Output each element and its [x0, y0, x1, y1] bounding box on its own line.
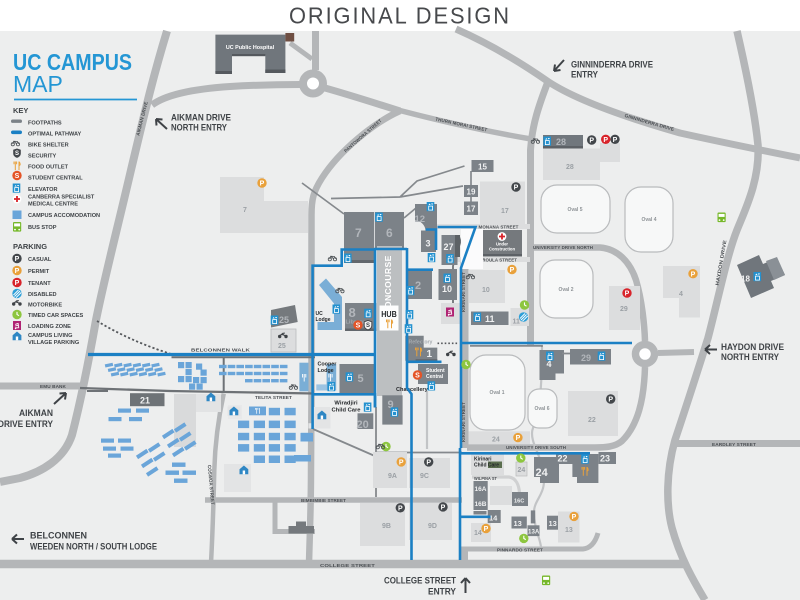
svg-text:KIRINARI STREET: KIRINARI STREET — [461, 402, 467, 442]
svg-text:24: 24 — [518, 467, 526, 474]
svg-text:Oval 2: Oval 2 — [558, 287, 573, 293]
svg-text:Cooper: Cooper — [318, 362, 338, 368]
svg-text:BIKE SHELTER: BIKE SHELTER — [28, 143, 69, 149]
svg-text:Oval 4: Oval 4 — [641, 217, 656, 223]
svg-text:28: 28 — [566, 164, 574, 171]
svg-text:25: 25 — [278, 343, 286, 350]
svg-text:22: 22 — [588, 417, 596, 424]
svg-text:29: 29 — [581, 353, 591, 363]
svg-text:18: 18 — [741, 275, 750, 284]
svg-text:TELITA STREET: TELITA STREET — [255, 395, 292, 401]
svg-text:17: 17 — [501, 208, 509, 215]
svg-text:24: 24 — [492, 437, 500, 444]
svg-text:7: 7 — [243, 207, 247, 214]
svg-text:BROULA STREET: BROULA STREET — [479, 258, 517, 264]
svg-text:9B: 9B — [382, 523, 391, 530]
svg-text:STUDENT CENTRAL: STUDENT CENTRAL — [28, 176, 83, 182]
svg-text:Wiradjiri: Wiradjiri — [334, 401, 358, 407]
svg-text:17: 17 — [467, 205, 476, 214]
svg-text:13A: 13A — [528, 529, 540, 536]
svg-text:16A: 16A — [475, 486, 487, 493]
svg-text:23: 23 — [600, 454, 610, 464]
svg-text:11: 11 — [485, 314, 495, 324]
svg-text:14: 14 — [474, 530, 482, 537]
svg-text:2: 2 — [415, 280, 421, 292]
svg-text:12: 12 — [415, 214, 426, 225]
svg-text:10: 10 — [482, 287, 490, 294]
svg-text:PERMIT: PERMIT — [28, 269, 50, 275]
svg-text:7: 7 — [355, 226, 362, 240]
svg-text:CASUAL: CASUAL — [28, 257, 52, 263]
svg-text:FOOD OUTLET: FOOD OUTLET — [28, 165, 69, 171]
svg-text:DISABLED: DISABLED — [28, 292, 57, 298]
svg-text:ENTRY: ENTRY — [571, 70, 599, 81]
svg-text:13: 13 — [514, 519, 522, 528]
svg-text:MAP: MAP — [13, 71, 63, 97]
svg-text:MEDICAL CENTRE: MEDICAL CENTRE — [28, 202, 78, 208]
svg-text:TIMED CAR SPACES: TIMED CAR SPACES — [28, 313, 83, 319]
svg-text:Construction: Construction — [489, 247, 515, 252]
svg-text:6: 6 — [386, 226, 393, 240]
svg-text:BELCONNEN WALK: BELCONNEN WALK — [191, 348, 251, 354]
svg-text:HUB: HUB — [381, 309, 397, 319]
svg-text:11: 11 — [513, 319, 521, 326]
svg-text:15: 15 — [478, 163, 487, 172]
svg-text:PINNARDO STREET: PINNARDO STREET — [497, 548, 543, 554]
svg-text:EMU BANK: EMU BANK — [40, 384, 66, 390]
svg-text:CAMPUS ACCOMODATION: CAMPUS ACCOMODATION — [28, 213, 100, 219]
svg-text:MOTORBIKE: MOTORBIKE — [28, 303, 62, 309]
svg-text:27: 27 — [444, 242, 454, 252]
svg-text:28: 28 — [556, 137, 566, 147]
svg-text:9A: 9A — [388, 473, 397, 480]
svg-text:Oval 6: Oval 6 — [534, 406, 549, 412]
svg-text:KEY: KEY — [13, 106, 28, 115]
svg-text:LOADING ZONE: LOADING ZONE — [28, 324, 71, 330]
svg-text:Child Care: Child Care — [474, 463, 499, 469]
svg-text:Chancellery: Chancellery — [396, 387, 429, 393]
svg-text:UNIVERSITY DRIVE NORTH: UNIVERSITY DRIVE NORTH — [533, 245, 593, 251]
svg-text:BUS STOP: BUS STOP — [28, 225, 57, 231]
svg-text:29: 29 — [620, 306, 628, 313]
svg-text:CAMPUS LIVING: CAMPUS LIVING — [28, 333, 72, 339]
svg-text:Lodge: Lodge — [318, 368, 334, 374]
svg-text:Refectory: Refectory — [409, 340, 433, 346]
svg-text:9C: 9C — [420, 473, 429, 480]
svg-text:16C: 16C — [514, 499, 524, 505]
svg-text:10: 10 — [442, 284, 452, 294]
svg-text:5: 5 — [358, 373, 364, 385]
svg-text:13: 13 — [565, 527, 573, 534]
svg-text:1: 1 — [427, 349, 433, 360]
svg-text:NORTH ENTRY: NORTH ENTRY — [721, 352, 780, 363]
svg-text:16B: 16B — [475, 501, 487, 508]
svg-text:24: 24 — [536, 467, 549, 479]
svg-text:NORTH ENTRY: NORTH ENTRY — [171, 123, 228, 134]
svg-text:FOOTPATHS: FOOTPATHS — [28, 121, 62, 127]
svg-text:CANBERRA SPECIALIST: CANBERRA SPECIALIST — [28, 195, 95, 201]
svg-text:20: 20 — [357, 419, 369, 431]
svg-text:4: 4 — [679, 291, 683, 298]
svg-text:BELCONNEN: BELCONNEN — [30, 531, 87, 542]
svg-text:BIMBIMBIE STREET: BIMBIMBIE STREET — [301, 498, 346, 504]
svg-text:DRIVE ENTRY: DRIVE ENTRY — [0, 419, 54, 430]
svg-text:25: 25 — [279, 315, 289, 325]
svg-text:SECURITY: SECURITY — [28, 154, 57, 160]
svg-text:OPTIMAL PATHWAY: OPTIMAL PATHWAY — [28, 132, 82, 138]
svg-text:PARKING: PARKING — [13, 242, 47, 251]
svg-text:13: 13 — [549, 519, 557, 528]
svg-text:3: 3 — [426, 239, 431, 249]
svg-text:VILLAGE PARKING: VILLAGE PARKING — [28, 340, 79, 346]
svg-text:TENANT: TENANT — [28, 281, 51, 287]
svg-text:UC Public Hospital: UC Public Hospital — [226, 45, 275, 51]
svg-text:22: 22 — [558, 454, 568, 464]
svg-text:Child Care: Child Care — [332, 408, 362, 414]
svg-text:19: 19 — [467, 188, 476, 197]
svg-text:AIKMAN: AIKMAN — [19, 408, 53, 419]
svg-text:EARDLEY STREET: EARDLEY STREET — [712, 442, 756, 448]
svg-text:Oval 1: Oval 1 — [489, 390, 504, 396]
svg-text:21: 21 — [140, 396, 150, 406]
svg-text:MONANA STREET: MONANA STREET — [479, 225, 519, 231]
svg-text:Lodge: Lodge — [316, 317, 331, 323]
svg-text:ENTRY: ENTRY — [428, 587, 457, 598]
svg-text:UNIVERSITY DRIVE SOUTH: UNIVERSITY DRIVE SOUTH — [506, 445, 566, 451]
svg-text:ORIGINAL DESIGN: ORIGINAL DESIGN — [289, 3, 511, 29]
svg-text:COLLEGE STREET: COLLEGE STREET — [320, 563, 375, 569]
svg-text:KIRINARI STREET: KIRINARI STREET — [461, 272, 467, 312]
svg-text:COLLEGE STREET: COLLEGE STREET — [384, 576, 456, 587]
svg-text:Central: Central — [426, 374, 444, 380]
svg-text:9D: 9D — [428, 523, 437, 530]
svg-text:8: 8 — [349, 305, 356, 320]
svg-text:WEEDEN NORTH / SOUTH LODGE: WEEDEN NORTH / SOUTH LODGE — [30, 542, 157, 553]
svg-text:Oval 5: Oval 5 — [567, 207, 582, 213]
svg-text:ELEVATOR: ELEVATOR — [28, 187, 58, 193]
